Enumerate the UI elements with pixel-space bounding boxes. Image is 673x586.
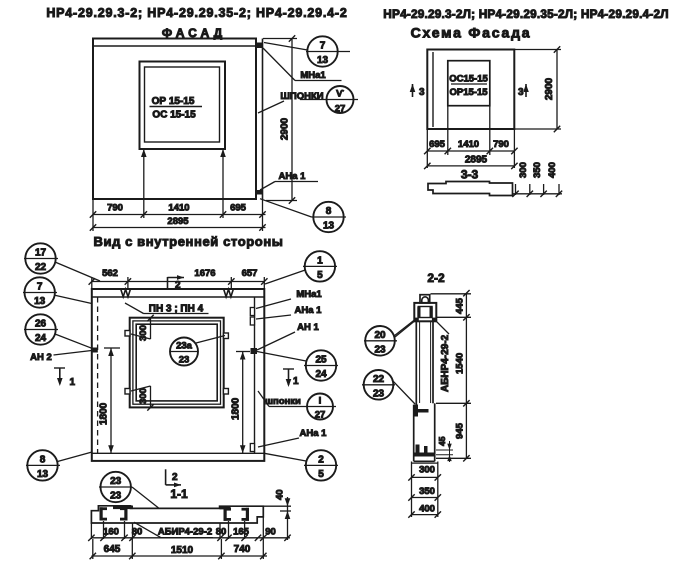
svg-text:24: 24 bbox=[35, 333, 47, 344]
svg-text:АБНР4-29-2: АБНР4-29-2 bbox=[440, 334, 451, 392]
svg-text:695: 695 bbox=[429, 139, 446, 150]
svg-text:1800: 1800 bbox=[231, 397, 242, 420]
svg-text:1-1: 1-1 bbox=[170, 487, 188, 501]
svg-text:ОР 15-15: ОР 15-15 bbox=[152, 96, 195, 107]
svg-text:АНа 1: АНа 1 bbox=[295, 305, 323, 316]
svg-text:2895: 2895 bbox=[167, 216, 189, 227]
svg-text:ОР15-15: ОР15-15 bbox=[449, 87, 488, 98]
svg-text:20: 20 bbox=[374, 330, 386, 341]
svg-text:2900: 2900 bbox=[544, 77, 555, 100]
svg-text:ОС15-15: ОС15-15 bbox=[449, 74, 488, 85]
svg-text:I: I bbox=[319, 396, 322, 407]
svg-text:АНа 1: АНа 1 bbox=[300, 428, 328, 439]
svg-text:5: 5 bbox=[317, 270, 323, 281]
svg-text:645: 645 bbox=[104, 544, 121, 555]
svg-text:22: 22 bbox=[373, 374, 385, 385]
svg-text:790: 790 bbox=[493, 139, 509, 150]
svg-text:790: 790 bbox=[107, 203, 123, 214]
svg-text:27: 27 bbox=[315, 410, 326, 421]
svg-text:350: 350 bbox=[532, 162, 543, 178]
svg-text:2: 2 bbox=[175, 280, 181, 291]
svg-text:562: 562 bbox=[102, 268, 118, 279]
svg-text:80: 80 bbox=[216, 527, 227, 538]
svg-text:НР4-29.29.3-2Л; НР4-29.29.35-2: НР4-29.29.3-2Л; НР4-29.29.35-2Л; НР4-29.… bbox=[383, 7, 668, 21]
svg-text:13: 13 bbox=[34, 296, 46, 307]
svg-text:7: 7 bbox=[37, 282, 43, 293]
svg-text:24: 24 bbox=[315, 369, 327, 380]
svg-text:17: 17 bbox=[35, 248, 47, 259]
svg-text:1410: 1410 bbox=[168, 203, 189, 214]
svg-text:90: 90 bbox=[265, 527, 276, 538]
svg-text:3: 3 bbox=[419, 87, 425, 98]
svg-text:шпонки: шпонки bbox=[265, 396, 301, 407]
svg-text:1510: 1510 bbox=[171, 545, 194, 556]
svg-text:ШПОНКИ: ШПОНКИ bbox=[280, 91, 323, 102]
svg-text:1: 1 bbox=[70, 377, 76, 388]
svg-text:13: 13 bbox=[37, 469, 49, 480]
svg-text:1410: 1410 bbox=[458, 139, 479, 150]
svg-text:40: 40 bbox=[275, 489, 286, 500]
svg-text:25: 25 bbox=[315, 355, 327, 366]
svg-text:8: 8 bbox=[326, 206, 332, 217]
svg-text:2900: 2900 bbox=[280, 117, 291, 140]
svg-text:23: 23 bbox=[374, 344, 386, 355]
svg-text:2: 2 bbox=[318, 454, 324, 465]
svg-text:23: 23 bbox=[110, 476, 122, 487]
svg-text:Вид с внутренней стороны: Вид с внутренней стороны bbox=[94, 234, 284, 249]
svg-text:1540: 1540 bbox=[455, 353, 466, 374]
svg-text:23: 23 bbox=[179, 355, 190, 366]
svg-text:2-2: 2-2 bbox=[427, 271, 445, 285]
svg-text:АБИР4-29-2: АБИР4-29-2 bbox=[158, 527, 212, 538]
svg-text:350: 350 bbox=[419, 486, 435, 497]
svg-text:695: 695 bbox=[230, 203, 247, 214]
svg-text:3: 3 bbox=[518, 87, 524, 98]
svg-text:400: 400 bbox=[419, 503, 435, 514]
svg-text:657: 657 bbox=[242, 268, 258, 279]
svg-text:23: 23 bbox=[373, 388, 385, 399]
svg-text:3-3: 3-3 bbox=[461, 168, 479, 182]
svg-text:445: 445 bbox=[455, 297, 466, 314]
svg-text:22: 22 bbox=[35, 262, 47, 273]
svg-text:НР4-29.29.3-2; НР4-29.29.35-2;: НР4-29.29.3-2; НР4-29.29.35-2; НР4-29.29… bbox=[46, 6, 347, 20]
svg-text:2895: 2895 bbox=[465, 155, 488, 166]
svg-text:23: 23 bbox=[110, 491, 122, 502]
svg-text:ОС 15-15: ОС 15-15 bbox=[152, 110, 196, 121]
svg-text:Схема Фасада: Схема Фасада bbox=[411, 25, 532, 41]
svg-text:АН 2: АН 2 bbox=[30, 352, 52, 363]
svg-text:945: 945 bbox=[455, 422, 466, 439]
svg-text:165: 165 bbox=[233, 527, 250, 538]
svg-text:1: 1 bbox=[293, 376, 299, 387]
svg-text:45: 45 bbox=[437, 436, 447, 446]
svg-text:8: 8 bbox=[40, 454, 46, 465]
svg-text:400: 400 bbox=[547, 162, 558, 178]
svg-text:26: 26 bbox=[35, 319, 47, 330]
svg-text:80: 80 bbox=[132, 527, 143, 538]
svg-text:300: 300 bbox=[138, 325, 149, 341]
svg-text:2: 2 bbox=[172, 472, 178, 483]
svg-text:300: 300 bbox=[518, 162, 529, 178]
svg-text:1800: 1800 bbox=[99, 402, 110, 425]
svg-text:1676: 1676 bbox=[194, 268, 215, 279]
svg-text:МНа1: МНа1 bbox=[296, 289, 322, 300]
svg-text:АНа 1: АНа 1 bbox=[279, 171, 307, 182]
svg-text:160: 160 bbox=[103, 527, 119, 538]
svg-text:Ѵ: Ѵ bbox=[336, 89, 344, 100]
svg-text:7: 7 bbox=[320, 41, 326, 52]
svg-text:300: 300 bbox=[138, 388, 149, 404]
svg-text:АН 1: АН 1 bbox=[297, 322, 319, 333]
svg-text:МНа1: МНа1 bbox=[300, 70, 326, 81]
svg-text:27: 27 bbox=[335, 104, 346, 115]
svg-text:5: 5 bbox=[318, 469, 324, 480]
svg-text:23а: 23а bbox=[176, 341, 193, 352]
svg-text:1: 1 bbox=[317, 255, 323, 266]
svg-text:13: 13 bbox=[317, 55, 329, 66]
svg-text:13: 13 bbox=[323, 221, 335, 232]
svg-text:740: 740 bbox=[234, 544, 251, 555]
svg-text:300: 300 bbox=[419, 465, 435, 476]
